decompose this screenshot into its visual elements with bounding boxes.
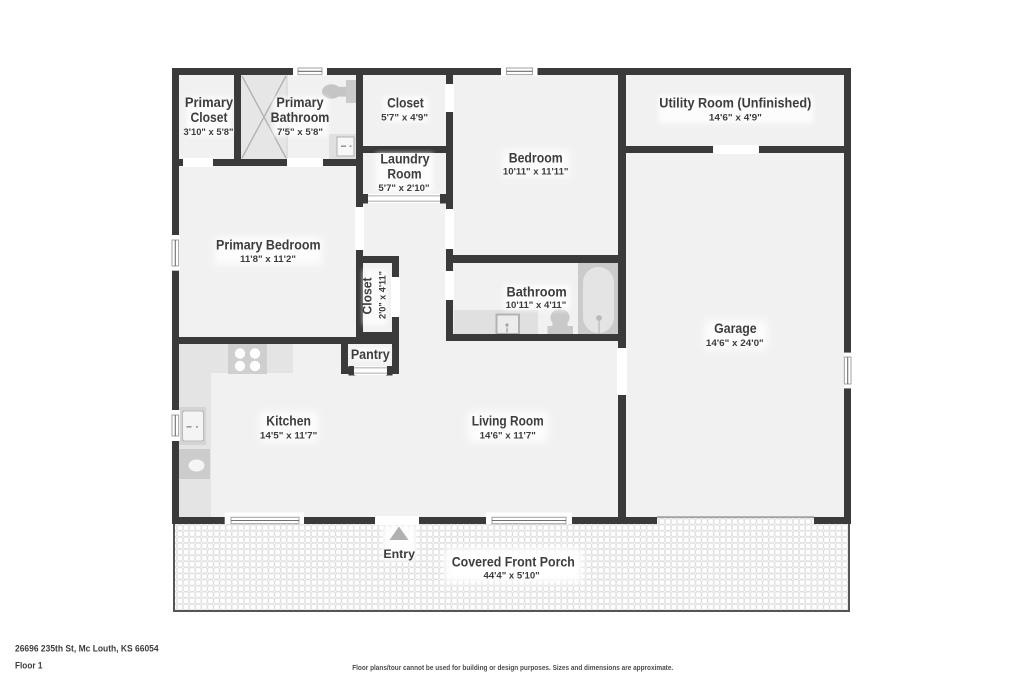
svg-text:Bedroom: Bedroom — [509, 151, 563, 166]
svg-text:14'6" x 24'0": 14'6" x 24'0" — [706, 338, 764, 349]
svg-text:14'6" x 11'7": 14'6" x 11'7" — [480, 431, 536, 442]
svg-text:5'7" x 4'9": 5'7" x 4'9" — [381, 113, 428, 124]
svg-text:10'11" x 4'11": 10'11" x 4'11" — [506, 300, 567, 311]
svg-text:Primary Bedroom: Primary Bedroom — [216, 238, 321, 253]
svg-text:Laundry: Laundry — [380, 152, 430, 167]
svg-text:10'11" x 11'11": 10'11" x 11'11" — [503, 167, 569, 178]
svg-text:Utility Room (Unfinished): Utility Room (Unfinished) — [659, 96, 811, 111]
svg-text:5'7" x 2'10": 5'7" x 2'10" — [378, 183, 429, 194]
svg-text:14'6" x 4'9": 14'6" x 4'9" — [709, 113, 762, 124]
svg-text:Pantry: Pantry — [351, 347, 390, 362]
svg-text:Primary: Primary — [185, 95, 234, 110]
svg-text:Closet: Closet — [361, 277, 375, 315]
svg-text:Closet: Closet — [387, 96, 424, 111]
svg-text:Floor plans/tour cannot be use: Floor plans/tour cannot be used for buil… — [352, 663, 673, 672]
svg-text:Garage: Garage — [714, 321, 757, 336]
svg-text:7'5" x 5'8": 7'5" x 5'8" — [277, 127, 323, 138]
svg-text:3'10" x 5'8": 3'10" x 5'8" — [184, 127, 234, 138]
svg-text:44'4" x 5'10": 44'4" x 5'10" — [484, 571, 540, 582]
svg-text:Entry: Entry — [383, 547, 415, 561]
svg-text:Kitchen: Kitchen — [266, 414, 311, 429]
svg-text:Closet: Closet — [191, 110, 228, 125]
svg-text:Primary: Primary — [276, 95, 324, 110]
svg-text:Covered Front Porch: Covered Front Porch — [452, 555, 575, 570]
svg-text:Room: Room — [387, 167, 421, 182]
svg-text:26696 235th St, Mc Louth, KS 6: 26696 235th St, Mc Louth, KS 66054 — [15, 644, 159, 654]
svg-text:Living Room: Living Room — [472, 414, 544, 429]
svg-text:14'5" x 11'7": 14'5" x 11'7" — [260, 431, 317, 442]
svg-text:Bathroom: Bathroom — [507, 285, 567, 300]
svg-text:11'8" x 11'2": 11'8" x 11'2" — [240, 254, 296, 265]
svg-text:Floor 1: Floor 1 — [15, 661, 42, 671]
svg-text:Bathroom: Bathroom — [271, 110, 330, 125]
svg-text:2'0" x 4'11": 2'0" x 4'11" — [378, 271, 388, 319]
